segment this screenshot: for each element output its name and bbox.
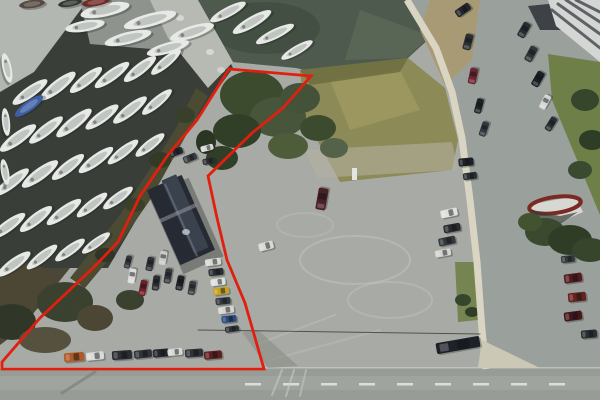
aerial-photo-canvas xyxy=(0,0,600,400)
car-glass xyxy=(567,256,571,262)
parcel-bush xyxy=(268,133,308,159)
car-highlight xyxy=(135,352,139,358)
br-grass-tree xyxy=(455,294,471,306)
car-glass xyxy=(576,293,582,301)
car-glass xyxy=(442,250,447,256)
midright-tree xyxy=(518,213,542,231)
car-highlight xyxy=(569,294,573,301)
right-tree xyxy=(571,89,599,111)
car-glass xyxy=(217,279,222,285)
car-glass xyxy=(121,351,127,359)
car-glass xyxy=(73,353,79,361)
car-glass xyxy=(469,173,474,179)
car-glass xyxy=(220,288,225,294)
car-highlight xyxy=(168,350,171,355)
car-highlight xyxy=(209,270,212,275)
car xyxy=(208,268,225,278)
car-glass xyxy=(160,349,165,356)
lane-dash xyxy=(473,383,489,386)
hedge-bush xyxy=(175,107,195,123)
car-glass xyxy=(142,350,148,357)
bottomleft-tree xyxy=(19,327,71,353)
car-glass xyxy=(193,349,198,356)
white-post xyxy=(352,168,357,180)
car xyxy=(112,350,134,362)
car-highlight xyxy=(205,353,209,359)
br-grass-tree xyxy=(465,307,479,317)
bottomleft-tree xyxy=(77,305,113,331)
car-glass xyxy=(572,274,578,282)
car-highlight xyxy=(222,317,225,322)
car xyxy=(167,348,184,358)
car-highlight xyxy=(562,257,565,262)
car-highlight xyxy=(186,350,190,356)
car-glass xyxy=(153,279,159,284)
car-highlight xyxy=(582,332,586,338)
ground-layers xyxy=(0,0,600,400)
rock xyxy=(217,67,225,73)
car-highlight xyxy=(216,299,219,304)
car-glass xyxy=(215,269,220,275)
car-highlight xyxy=(459,159,462,165)
rock xyxy=(206,49,214,55)
ellipse xyxy=(182,229,190,235)
car-glass xyxy=(588,330,593,337)
car-glass xyxy=(572,312,578,320)
car-highlight xyxy=(87,354,91,360)
car xyxy=(204,350,224,361)
lane-dash xyxy=(283,383,299,386)
car-glass xyxy=(174,349,179,355)
car-glass xyxy=(212,351,218,358)
lane-dash xyxy=(397,383,413,386)
bottom-road-center xyxy=(0,376,600,390)
lane-dash xyxy=(511,383,527,386)
lane-dash xyxy=(435,383,451,386)
car-highlight xyxy=(113,352,117,359)
right-tree xyxy=(568,161,592,179)
aerial-photo xyxy=(0,0,600,400)
car xyxy=(86,351,106,362)
lane-dash xyxy=(321,383,337,386)
car xyxy=(581,329,599,340)
lane-dash xyxy=(549,383,565,386)
car-glass xyxy=(228,316,233,322)
car xyxy=(134,349,154,360)
parcel-bush xyxy=(300,115,336,141)
car xyxy=(458,157,475,168)
car-highlight xyxy=(65,354,70,361)
car xyxy=(561,255,577,265)
car xyxy=(215,297,232,307)
lane-dash xyxy=(245,383,261,386)
car-highlight xyxy=(439,343,449,352)
car xyxy=(185,348,205,359)
parcel-bush xyxy=(320,138,348,158)
car-glass xyxy=(212,259,217,265)
car-glass xyxy=(465,158,470,165)
car-highlight xyxy=(154,351,158,357)
car xyxy=(568,291,588,303)
car-glass xyxy=(94,352,100,359)
car xyxy=(221,315,238,325)
lane-dash xyxy=(359,383,375,386)
car-glass xyxy=(225,307,230,313)
car-glass xyxy=(222,298,227,304)
car xyxy=(64,352,86,364)
car-glass xyxy=(231,326,236,331)
